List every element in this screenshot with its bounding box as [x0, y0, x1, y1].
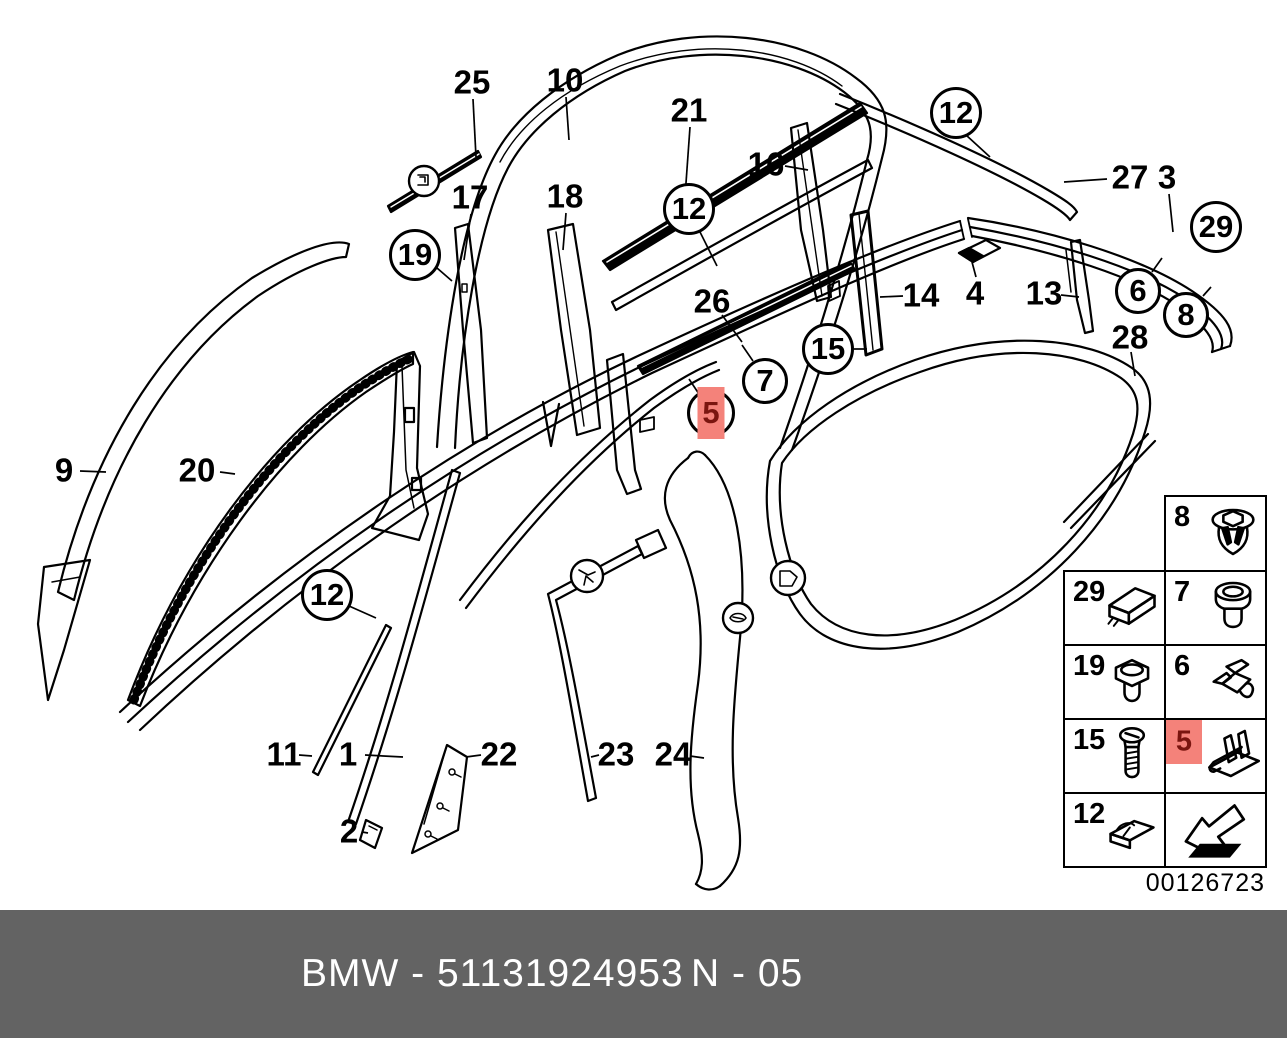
callout-4[interactable]: 4: [966, 277, 984, 310]
footer-bar: BMW - 51131924953 N - 05: [0, 910, 1287, 1038]
legend-number: 6: [1174, 650, 1190, 683]
legend-cell-7[interactable]: 7: [1164, 570, 1267, 646]
retainer-clip-icon: [1102, 798, 1162, 863]
callout-circle-label: 6: [1129, 273, 1146, 309]
legend-number: 29: [1073, 576, 1105, 609]
legend-highlight-box: 5: [1166, 720, 1202, 764]
callout-circle-label: 12: [939, 95, 973, 131]
callout-circle-label: 19: [398, 237, 432, 273]
callout-2[interactable]: 2: [340, 815, 358, 848]
footer-page-code: N - 05: [691, 952, 803, 996]
callout-10[interactable]: 10: [547, 64, 584, 97]
callout-11[interactable]: 11: [267, 738, 302, 771]
callout-18[interactable]: 18: [547, 180, 584, 213]
callout-3[interactable]: 3: [1158, 161, 1176, 194]
parts-diagram-canvas: 2510211627317182614413289201112223242122…: [0, 0, 1287, 1038]
clamp-block-icon: [1102, 576, 1162, 641]
wedge-cover-icon: [1203, 724, 1263, 789]
callout-20[interactable]: 20: [179, 454, 216, 487]
callout-circle-15[interactable]: 15: [802, 323, 854, 375]
legend-number: 5: [1176, 726, 1192, 759]
callout-circle-6[interactable]: 6: [1115, 268, 1161, 314]
callout-26[interactable]: 26: [694, 285, 731, 318]
callout-circle-label: 12: [310, 577, 344, 613]
callout-1[interactable]: 1: [339, 738, 357, 771]
legend-cell-arrow[interactable]: [1164, 792, 1267, 868]
footer-part-number: BMW - 51131924953: [301, 952, 684, 996]
callout-circle-7[interactable]: 7: [742, 358, 788, 404]
callout-28[interactable]: 28: [1112, 321, 1149, 354]
callout-9[interactable]: 9: [55, 454, 73, 487]
legend-cell-15[interactable]: 15: [1063, 718, 1166, 794]
legend-cell-12[interactable]: 12: [1063, 792, 1166, 868]
legend-number: 8: [1174, 501, 1190, 534]
callout-circle-label: 29: [1199, 209, 1233, 245]
callout-21[interactable]: 21: [671, 94, 708, 127]
legend-cell-8[interactable]: 8: [1164, 495, 1267, 572]
callout-25[interactable]: 25: [454, 66, 491, 99]
callout-24[interactable]: 24: [655, 738, 692, 771]
expanding-rivet-icon: [1203, 501, 1263, 566]
legend-number: 12: [1073, 798, 1105, 831]
callout-circle-label: 5: [702, 395, 719, 431]
spring-clip-icon: [1203, 650, 1263, 715]
legend-number: 19: [1073, 650, 1105, 683]
callout-16[interactable]: 16: [748, 148, 785, 181]
callout-circle-8[interactable]: 8: [1163, 292, 1209, 338]
legend-number: 7: [1174, 576, 1190, 609]
callout-14[interactable]: 14: [903, 279, 940, 312]
legend-cell-19[interactable]: 19: [1063, 644, 1166, 720]
callout-circle-label: 7: [756, 363, 773, 399]
callout-23[interactable]: 23: [598, 738, 635, 771]
callout-27[interactable]: 27: [1112, 161, 1149, 194]
plate-code: 00126723: [1146, 869, 1265, 898]
screw-icon: [1102, 724, 1162, 789]
legend-cell-29[interactable]: 29: [1063, 570, 1166, 646]
callout-circle-19[interactable]: 19: [389, 229, 441, 281]
direction-arrow-icon: [1173, 791, 1259, 870]
callout-circle-5[interactable]: 5: [687, 389, 735, 437]
grommet-icon: [1203, 576, 1263, 641]
hex-plug-icon: [1102, 650, 1162, 715]
callout-17[interactable]: 17: [452, 181, 489, 214]
callout-circle-label: 15: [811, 331, 845, 367]
callout-circle-12[interactable]: 12: [663, 183, 715, 235]
callout-13[interactable]: 13: [1026, 277, 1063, 310]
callout-circle-29[interactable]: 29: [1190, 201, 1242, 253]
callout-circle-label: 12: [672, 191, 706, 227]
legend-cell-6[interactable]: 6: [1164, 644, 1267, 720]
callout-circle-label: 8: [1177, 297, 1194, 333]
callout-circle-12[interactable]: 12: [301, 569, 353, 621]
legend-number: 15: [1073, 724, 1105, 757]
callout-circle-12[interactable]: 12: [930, 87, 982, 139]
legend-cell-5[interactable]: 5: [1164, 718, 1267, 794]
callout-22[interactable]: 22: [481, 738, 518, 771]
